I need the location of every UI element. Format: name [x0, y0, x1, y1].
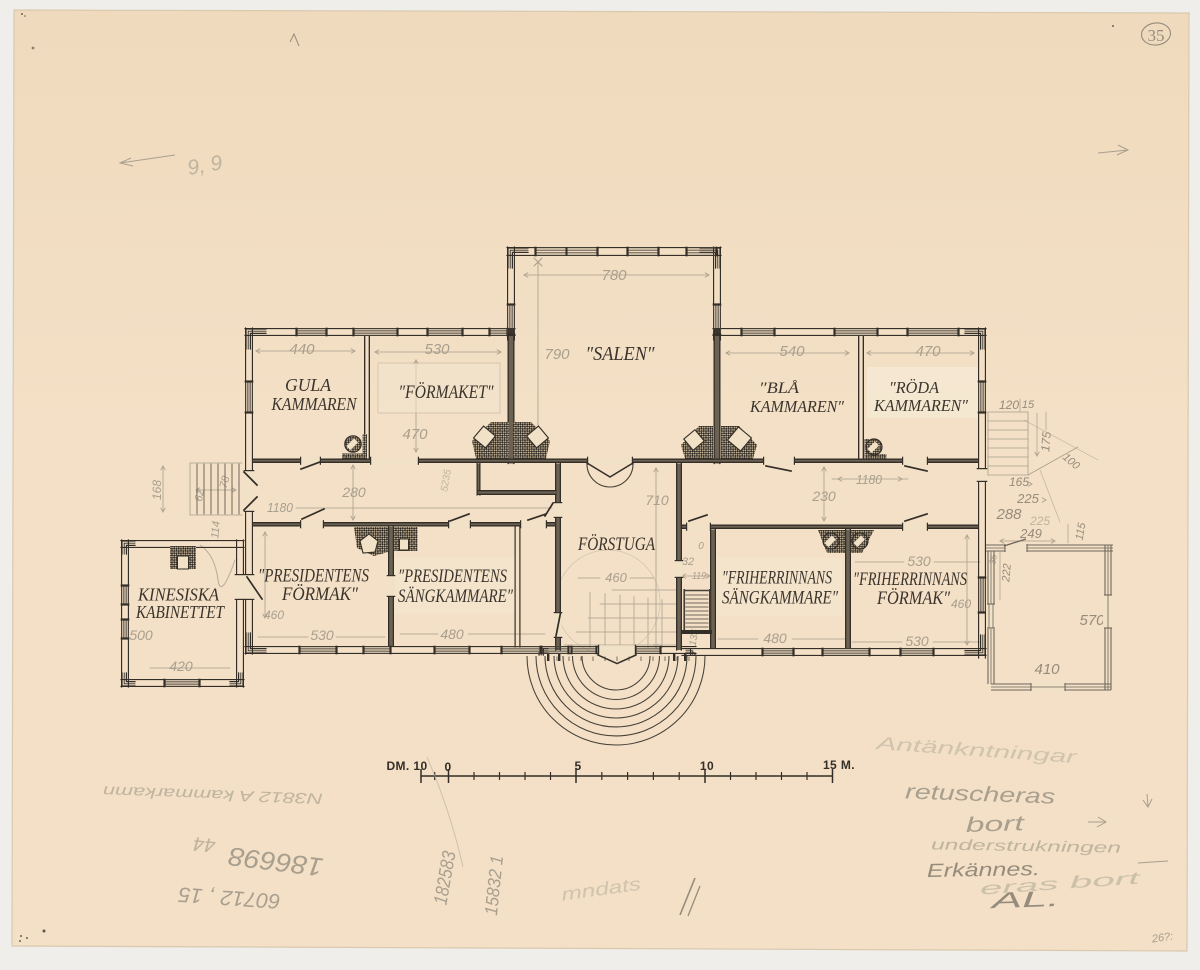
svg-text:710: 710: [645, 492, 669, 508]
svg-text:1180: 1180: [267, 500, 294, 515]
svg-text:530: 530: [424, 341, 450, 358]
svg-text:KABINETTET: KABINETTET: [135, 602, 226, 622]
svg-text:460: 460: [951, 597, 971, 611]
svg-text:570: 570: [1079, 612, 1105, 629]
svg-text:780: 780: [601, 267, 627, 284]
svg-text:KAMMAREN″: KAMMAREN″: [749, 397, 845, 416]
svg-text:SÄNGKAMMARE″: SÄNGKAMMARE″: [722, 588, 839, 609]
svg-text:AL.: AL.: [987, 886, 1060, 914]
svg-text:222: 222: [1000, 563, 1014, 583]
svg-text:FÖRMAK″: FÖRMAK″: [876, 588, 951, 609]
svg-text:480: 480: [440, 626, 464, 642]
svg-text:62: 62: [193, 488, 207, 502]
svg-text:″FÖRMAKET″: ″FÖRMAKET″: [399, 382, 495, 403]
svg-text:500: 500: [129, 627, 153, 643]
svg-text:440: 440: [289, 341, 315, 358]
svg-text:790: 790: [544, 346, 570, 363]
svg-text:″FRIHERRINNANS: ″FRIHERRINNANS: [722, 568, 832, 589]
svg-text:KAMMAREN″: KAMMAREN″: [873, 396, 969, 415]
svg-text:″BLÅ: ″BLÅ: [759, 380, 800, 397]
svg-text:540: 540: [779, 343, 805, 360]
svg-text:168: 168: [150, 480, 164, 500]
svg-text:SÄNGKAMMARE″: SÄNGKAMMARE″: [398, 586, 514, 607]
svg-text:119: 119: [692, 570, 706, 582]
svg-text:15 M.: 15 M.: [823, 758, 855, 772]
svg-text:KAMMAREN: KAMMAREN: [271, 394, 358, 414]
svg-text:bort: bort: [965, 812, 1026, 837]
svg-text:410: 410: [1034, 661, 1060, 678]
svg-text:FÖRSTUGA: FÖRSTUGA: [577, 534, 655, 555]
svg-text:175: 175: [1038, 431, 1054, 452]
svg-text:480: 480: [763, 630, 787, 646]
svg-text:225: 225: [1016, 491, 1039, 506]
svg-text:470: 470: [915, 343, 941, 360]
svg-text:530: 530: [310, 627, 334, 643]
svg-text:530: 530: [907, 553, 931, 569]
svg-text:″FRIHERRINNANS: ″FRIHERRINNANS: [853, 569, 967, 590]
svg-text:230: 230: [811, 488, 836, 504]
svg-text:460: 460: [264, 608, 284, 622]
svg-text:GULA: GULA: [285, 375, 332, 395]
svg-text:5: 5: [574, 759, 581, 773]
svg-text:FÖRMAK″: FÖRMAK″: [281, 584, 359, 605]
svg-text:0: 0: [698, 541, 704, 552]
svg-text:120: 120: [999, 398, 1019, 412]
svg-text:114: 114: [209, 520, 222, 539]
svg-text:35: 35: [1148, 26, 1165, 45]
svg-text:44: 44: [192, 832, 216, 856]
svg-text:1180: 1180: [856, 472, 883, 487]
svg-text:249: 249: [1019, 526, 1042, 541]
svg-text:10: 10: [700, 759, 714, 773]
svg-text:32: 32: [682, 556, 694, 568]
svg-text:530: 530: [905, 633, 929, 649]
svg-text:″SALEN″: ″SALEN″: [586, 343, 656, 365]
svg-text:DM. 10: DM. 10: [386, 759, 427, 773]
svg-text:165: 165: [1009, 475, 1029, 489]
svg-text:understrukningen: understrukningen: [931, 836, 1121, 856]
svg-text:280: 280: [341, 484, 366, 500]
svg-text:460: 460: [605, 570, 627, 585]
svg-text:″RÖDA: ″RÖDA: [889, 378, 940, 397]
svg-text:288: 288: [995, 506, 1022, 523]
svg-text:″PRESIDENTENS: ″PRESIDENTENS: [398, 566, 507, 587]
svg-text:470: 470: [402, 426, 428, 443]
svg-text:420: 420: [169, 658, 193, 674]
svg-text:0: 0: [444, 760, 451, 774]
svg-text:15: 15: [1022, 399, 1035, 411]
